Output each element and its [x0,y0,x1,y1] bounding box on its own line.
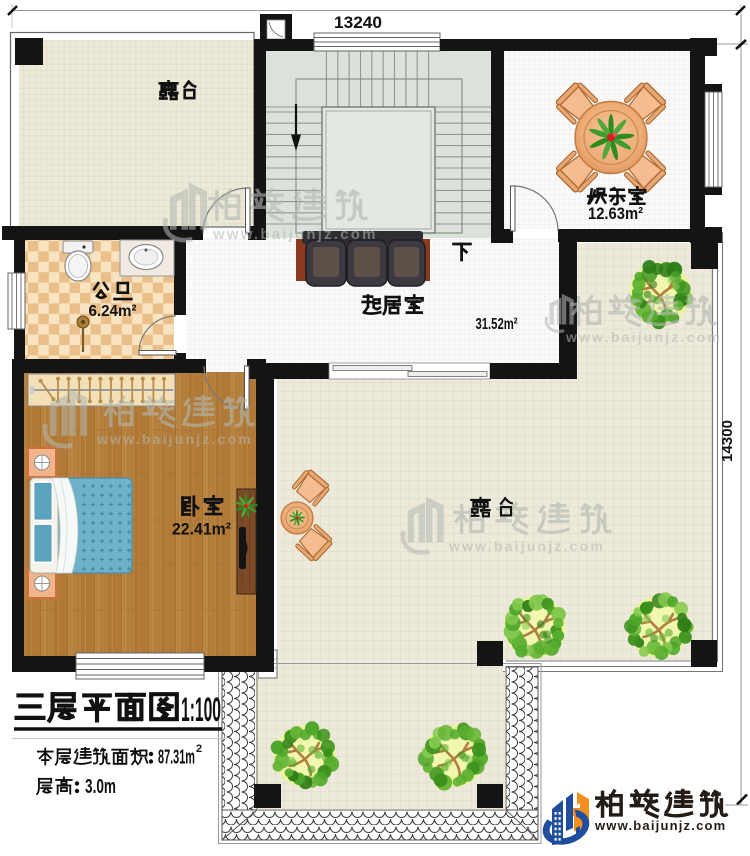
svg-text:www.baijunjz.com: www.baijunjz.com [594,818,726,833]
svg-text:6.24m²: 6.24m² [89,303,137,320]
svg-text:www.baijunjz.com: www.baijunjz.com [96,431,253,447]
svg-text:www.baijunjz.com: www.baijunjz.com [212,226,378,243]
svg-text:12.63m²: 12.63m² [588,205,643,223]
svg-text:2: 2 [196,743,202,755]
svg-text:13240: 13240 [334,14,382,32]
svg-text:87.31m: 87.31m [158,747,195,769]
svg-text:1:100: 1:100 [181,691,221,729]
svg-text:31.52m²: 31.52m² [476,316,518,333]
svg-text:www.baijunjz.com: www.baijunjz.com [565,329,722,345]
svg-text:3.0m: 3.0m [85,776,116,798]
svg-text:www.baijunjz.com: www.baijunjz.com [448,538,605,554]
svg-text:14300: 14300 [719,420,736,462]
svg-text:22.41m²: 22.41m² [172,521,231,539]
